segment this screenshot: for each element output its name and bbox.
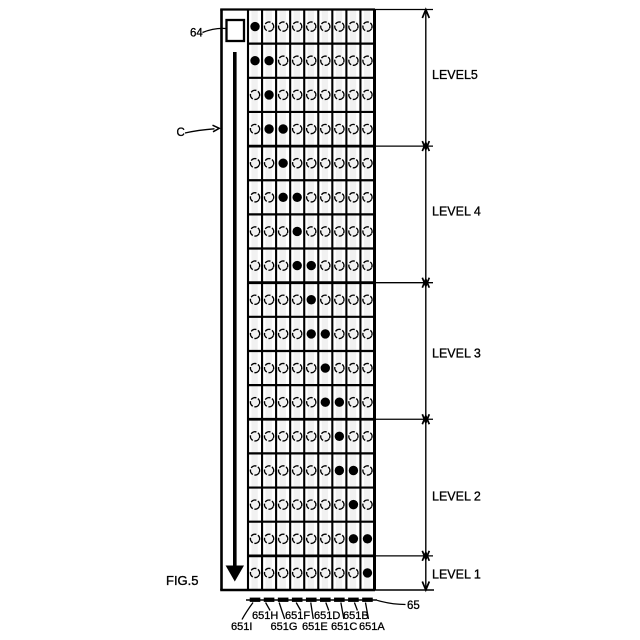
svg-text:FIG.5: FIG.5 bbox=[166, 573, 199, 588]
svg-text:LEVEL5: LEVEL5 bbox=[432, 68, 478, 82]
svg-text:C: C bbox=[177, 127, 185, 139]
svg-text:651C: 651C bbox=[331, 621, 357, 633]
svg-text:64: 64 bbox=[190, 28, 203, 40]
svg-text:651E: 651E bbox=[302, 621, 328, 633]
svg-text:651G: 651G bbox=[271, 621, 298, 633]
svg-text:LEVEL 4: LEVEL 4 bbox=[432, 205, 481, 219]
svg-text:LEVEL 3: LEVEL 3 bbox=[432, 347, 481, 361]
svg-text:LEVEL 2: LEVEL 2 bbox=[432, 490, 481, 504]
svg-text:651A: 651A bbox=[359, 621, 385, 633]
svg-text:LEVEL 1: LEVEL 1 bbox=[432, 568, 481, 582]
svg-text:65: 65 bbox=[407, 600, 420, 612]
svg-text:651I: 651I bbox=[231, 621, 252, 633]
